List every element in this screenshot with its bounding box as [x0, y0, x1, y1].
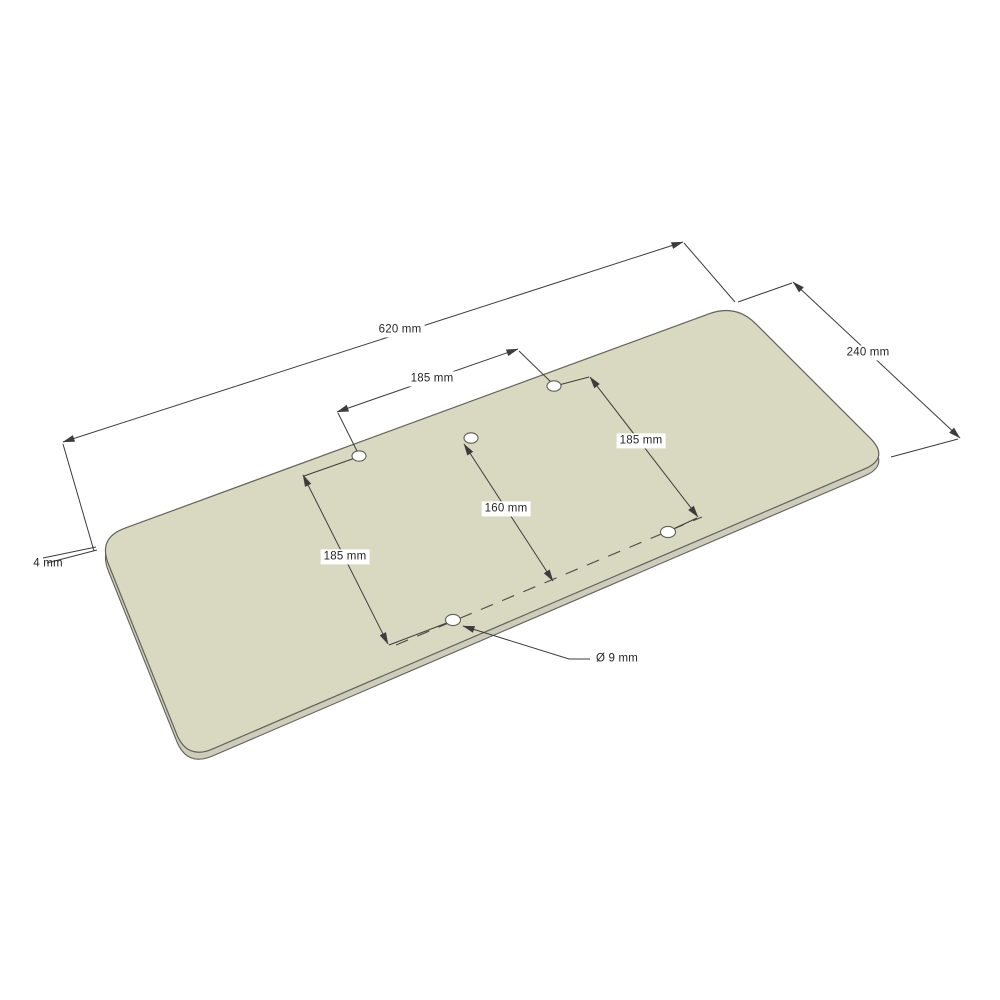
- extension-line: [738, 283, 792, 302]
- extension-line: [891, 439, 958, 457]
- dimension-label-hole-spacing-left: 185 mm: [321, 549, 370, 564]
- plate-top-face: [105, 310, 878, 752]
- extension-line: [63, 444, 94, 551]
- hole-bottom-left: [446, 614, 461, 625]
- dimension-label-hole-spacing-top: 185 mm: [408, 371, 457, 386]
- drawing-geometry: [0, 0, 1000, 1000]
- dimension-label-plate-thickness: 4 mm: [33, 557, 63, 570]
- technical-drawing-canvas: 620 mm 240 mm 185 mm 185 mm 160 mm 185 m…: [0, 0, 1000, 1000]
- hole-middle: [464, 433, 478, 443]
- dimension-label-plate-width: 240 mm: [844, 345, 893, 360]
- dimension-label-hole-spacing-right: 185 mm: [617, 433, 666, 448]
- extension-line: [684, 243, 735, 302]
- hole-top-left: [352, 451, 366, 461]
- hole-bottom-right: [661, 526, 676, 537]
- hole-top-right: [547, 381, 561, 391]
- dimension-label-plate-length: 620 mm: [376, 322, 425, 337]
- dimension-label-hole-diameter: Ø 9 mm: [596, 652, 638, 665]
- dimension-label-hole-row-offset: 160 mm: [482, 501, 531, 516]
